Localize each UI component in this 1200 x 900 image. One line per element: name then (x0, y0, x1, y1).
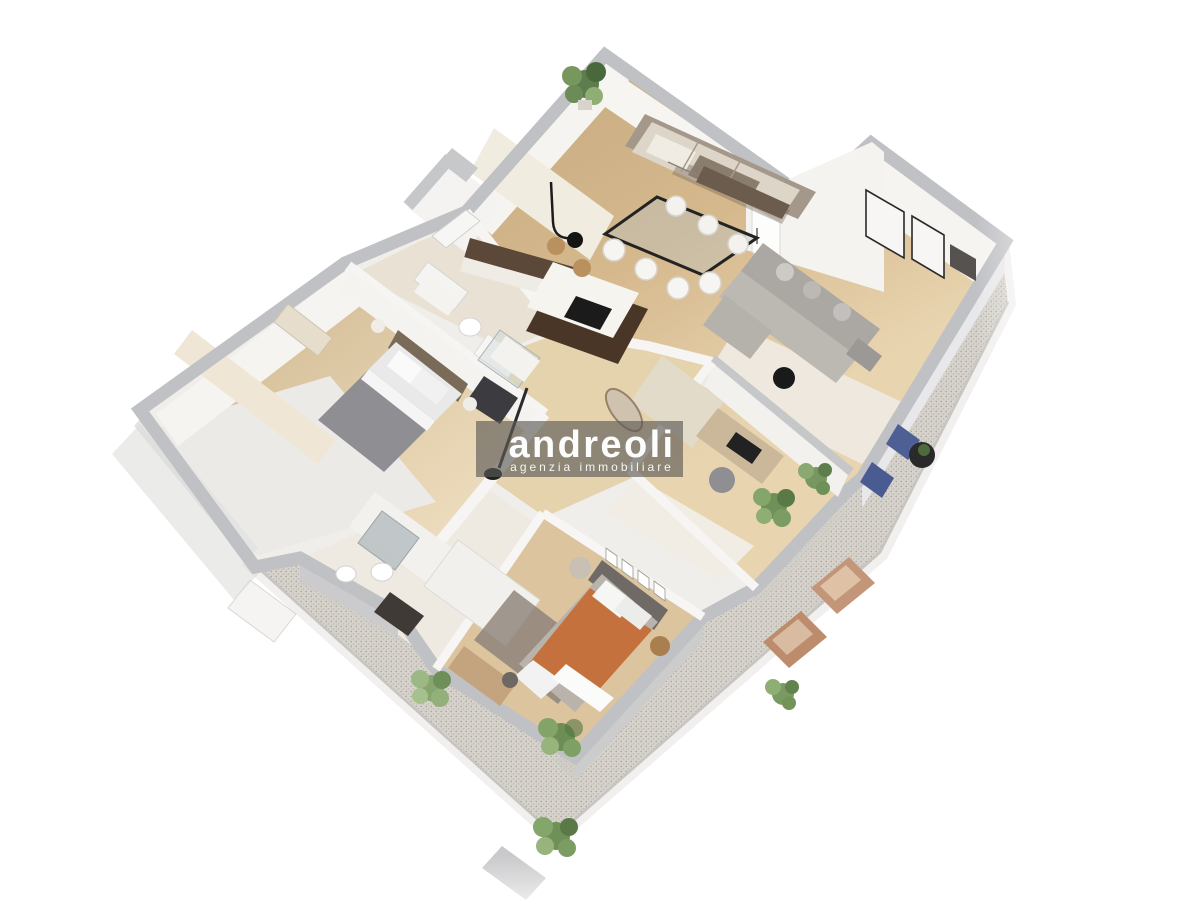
svg-text:agenzia immobiliare: agenzia immobiliare (510, 460, 674, 474)
